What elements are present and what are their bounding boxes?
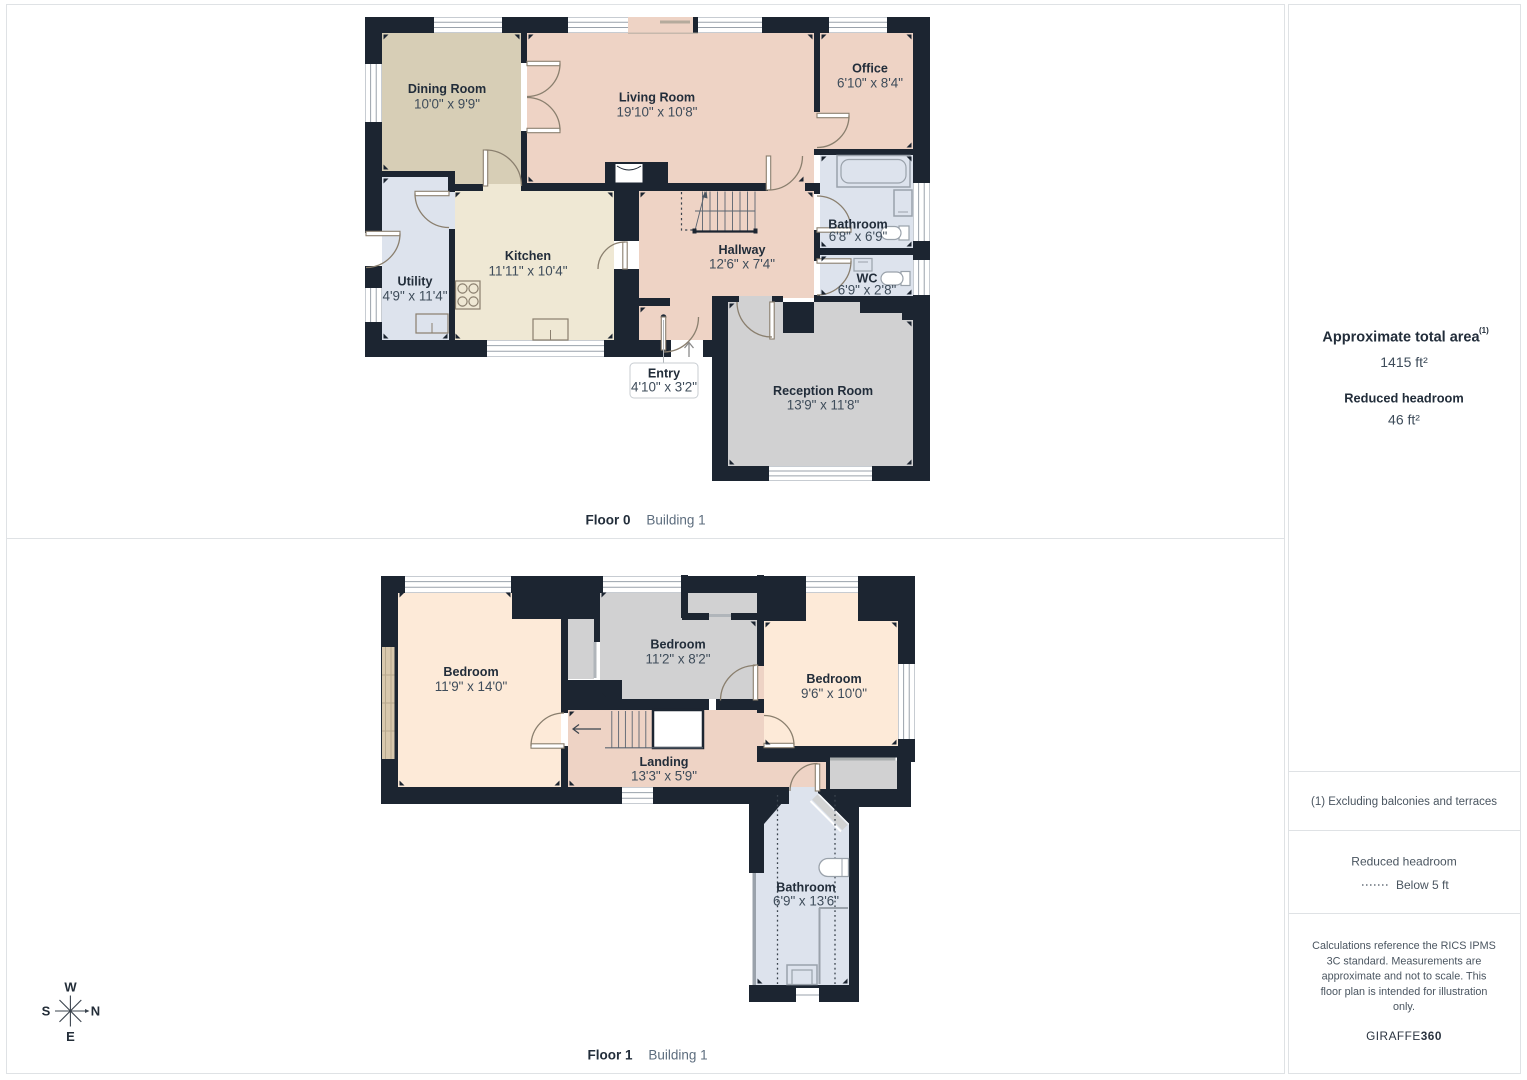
svg-text:floor plan is intended for ill: floor plan is intended for illustration (1321, 986, 1488, 998)
svg-text:Building 1: Building 1 (648, 1048, 707, 1063)
svg-text:6'9" x 13'6": 6'9" x 13'6" (773, 894, 839, 909)
svg-text:GIRAFFE360: GIRAFFE360 (1366, 1029, 1442, 1043)
svg-text:11'2" x 8'2": 11'2" x 8'2" (646, 652, 711, 667)
svg-text:10'0" x 9'9": 10'0" x 9'9" (414, 97, 480, 112)
svg-text:Living Room: Living Room (619, 91, 695, 105)
svg-text:13'3" x 5'9": 13'3" x 5'9" (631, 769, 697, 784)
svg-text:4'9" x 11'4": 4'9" x 11'4" (383, 289, 448, 304)
svg-text:6'10" x 8'4": 6'10" x 8'4" (837, 76, 903, 91)
svg-text:E: E (66, 1029, 75, 1044)
svg-text:Office: Office (852, 62, 888, 76)
svg-text:Bedroom: Bedroom (443, 665, 498, 679)
svg-text:Floor 0: Floor 0 (585, 513, 630, 528)
svg-text:3C standard. Measurements are: 3C standard. Measurements are (1327, 955, 1482, 967)
svg-text:(1) Excluding balconies and te: (1) Excluding balconies and terraces (1311, 796, 1497, 808)
svg-text:Kitchen: Kitchen (505, 249, 551, 263)
svg-text:11'11" x 10'4": 11'11" x 10'4" (489, 264, 568, 279)
svg-text:S: S (42, 1004, 51, 1019)
svg-text:1415 ft²: 1415 ft² (1380, 354, 1428, 370)
svg-text:46 ft²: 46 ft² (1388, 412, 1420, 428)
svg-text:approximate and not to scale.: approximate and not to scale. This (1322, 971, 1487, 983)
svg-text:Landing: Landing (640, 755, 689, 769)
svg-text:11'9" x 14'0": 11'9" x 14'0" (435, 679, 508, 694)
svg-text:Dining Room: Dining Room (408, 82, 486, 96)
svg-text:19'10" x 10'8": 19'10" x 10'8" (617, 105, 698, 120)
svg-text:W: W (64, 980, 77, 995)
svg-text:Calculations reference the RIC: Calculations reference the RICS IPMS (1312, 940, 1496, 952)
svg-text:12'6" x 7'4": 12'6" x 7'4" (709, 257, 775, 272)
svg-text:Below 5 ft: Below 5 ft (1396, 878, 1449, 892)
svg-text:Utility: Utility (398, 275, 433, 289)
svg-text:Reception Room: Reception Room (773, 384, 873, 398)
svg-text:Floor 1: Floor 1 (587, 1048, 632, 1063)
svg-text:only.: only. (1393, 1001, 1415, 1013)
svg-text:13'9" x 11'8": 13'9" x 11'8" (787, 398, 860, 413)
svg-text:N: N (91, 1004, 100, 1019)
svg-text:Bedroom: Bedroom (806, 672, 861, 686)
svg-text:Hallway: Hallway (719, 243, 766, 257)
svg-text:(1): (1) (1479, 326, 1489, 335)
svg-text:Entry: Entry (648, 367, 680, 381)
svg-text:Building 1: Building 1 (646, 513, 705, 528)
svg-text:4'10" x 3'2": 4'10" x 3'2" (631, 380, 697, 395)
svg-text:9'6" x 10'0": 9'6" x 10'0" (801, 686, 867, 701)
svg-text:6'8" x 6'9": 6'8" x 6'9" (829, 229, 888, 244)
svg-text:Reduced headroom: Reduced headroom (1344, 391, 1463, 406)
svg-text:Bedroom: Bedroom (650, 638, 705, 652)
svg-text:Approximate total area: Approximate total area (1322, 330, 1480, 346)
svg-text:6'9" x 2'8": 6'9" x 2'8" (838, 283, 897, 298)
svg-text:Reduced headroom: Reduced headroom (1351, 855, 1456, 869)
svg-text:Bathroom: Bathroom (776, 881, 835, 895)
